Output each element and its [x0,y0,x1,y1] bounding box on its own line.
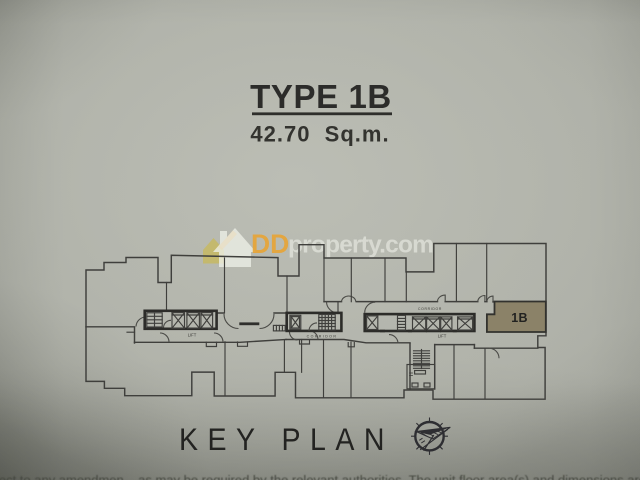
svg-text:DD: DD [251,229,289,259]
svg-text:CORRIDOR: CORRIDOR [307,334,338,338]
svg-text:ject to any amendmen... as may: ject to any amendmen... as may be requir… [0,473,640,480]
svg-text:CORRIDOR: CORRIDOR [418,307,442,311]
svg-text:KEY PLAN: KEY PLAN [179,421,394,457]
svg-text:LIFT: LIFT [188,333,197,338]
svg-text:42.70 Sq.m.: 42.70 Sq.m. [250,122,389,147]
svg-text:1B: 1B [511,311,528,325]
svg-text:LIFT: LIFT [438,334,447,339]
svg-text:TYPE 1B: TYPE 1B [250,78,392,115]
